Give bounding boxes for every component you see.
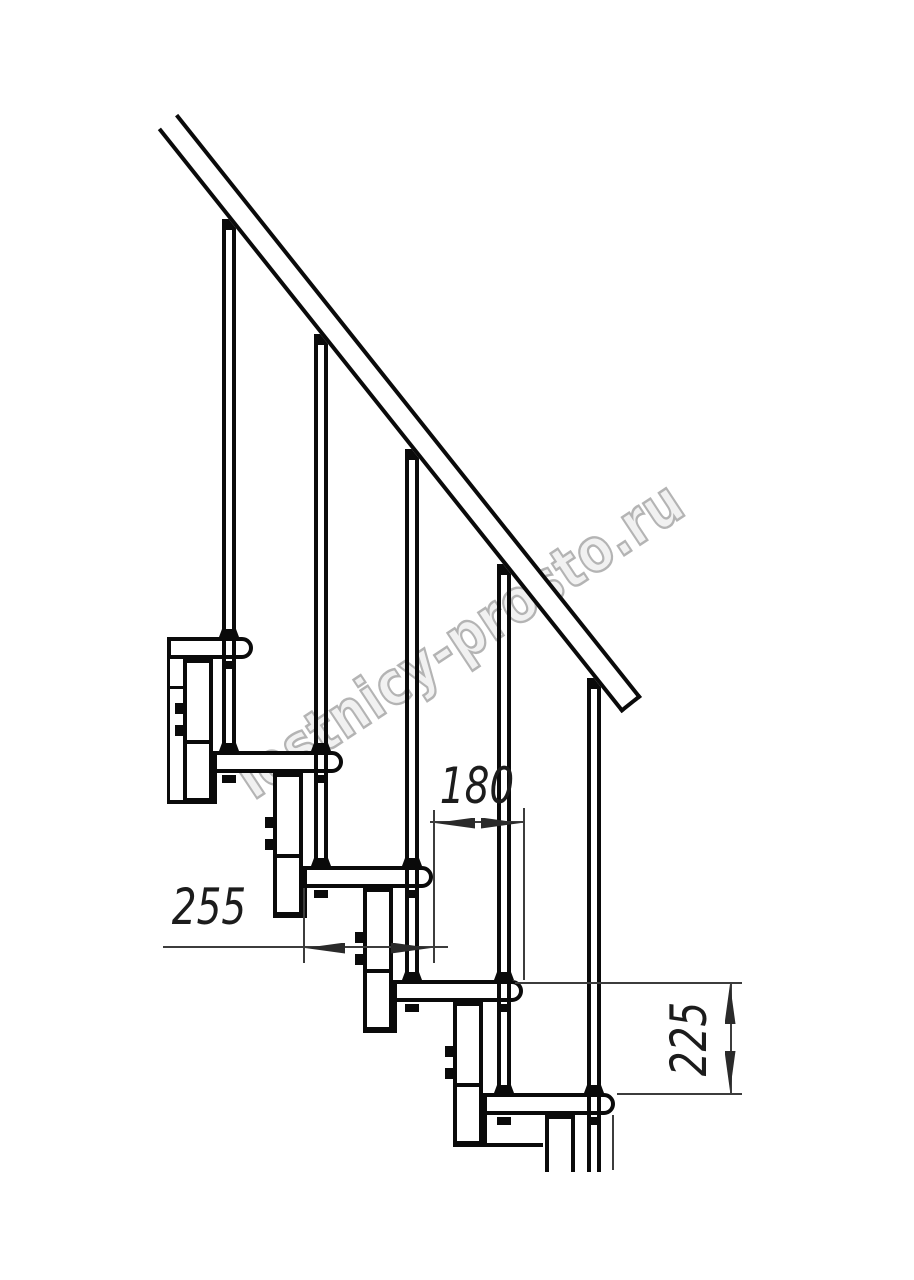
fastener-nut [405, 890, 419, 898]
fastener-nut [405, 1004, 419, 1012]
dimension-line [433, 810, 435, 963]
dimension-line [617, 1093, 742, 1095]
drawing-line [213, 773, 217, 804]
baluster-foot [494, 1085, 514, 1093]
baluster-foot [402, 972, 422, 980]
fastener-nut [587, 1117, 601, 1125]
fastener-nut [314, 890, 328, 898]
fastener-nut [222, 775, 236, 783]
drawing-line [453, 1083, 483, 1087]
module-bolt [445, 1046, 457, 1057]
dimension-arrow [725, 1051, 736, 1091]
drawing-line [363, 1029, 396, 1033]
drawing-line [363, 969, 393, 973]
dimension-arrow [725, 984, 736, 1024]
drawing-line [167, 800, 213, 804]
drawing-line [273, 854, 303, 858]
drawing-line [393, 1002, 397, 1033]
drawing-line [167, 686, 183, 689]
drawing-line [167, 659, 170, 804]
dimension-line [303, 888, 305, 963]
fastener-nut [497, 1004, 511, 1012]
drawing-line [483, 1115, 487, 1147]
module-bolt [355, 932, 367, 943]
module-bolt [175, 703, 187, 714]
drawing-line [273, 914, 306, 918]
baluster-foot [584, 1085, 604, 1093]
stair-module [545, 1115, 575, 1172]
dimension-arrow [305, 943, 345, 954]
dimension-line [523, 808, 525, 980]
dimension-arrow [435, 818, 475, 829]
stair-module [183, 659, 213, 802]
drawing-line [183, 740, 213, 744]
stair-module [453, 1002, 483, 1145]
baluster-foot [219, 629, 239, 637]
baluster-foot [311, 858, 331, 866]
baluster-foot [219, 743, 239, 751]
stair-module [363, 888, 393, 1031]
module-bolt [175, 725, 187, 736]
baluster-foot [311, 743, 331, 751]
dimension-line [515, 982, 742, 984]
module-bolt [265, 817, 277, 828]
baluster-rod [587, 689, 601, 1172]
fastener-nut [497, 1117, 511, 1125]
drawing-line [453, 1143, 543, 1147]
dimension-label-255: 255 [172, 882, 246, 932]
dimension-label-180: 180 [440, 761, 514, 811]
module-bolt [265, 839, 277, 850]
module-bolt [355, 954, 367, 965]
module-bolt [445, 1068, 457, 1079]
stair-tread [167, 637, 253, 659]
stair-module [273, 773, 303, 916]
baluster-foot [402, 858, 422, 866]
fastener-nut [314, 775, 328, 783]
drawing-canvas: lestnicy-prosto.ru 180 255 225 [0, 0, 914, 1280]
fastener-nut [222, 661, 236, 669]
dimension-line [612, 1115, 614, 1170]
baluster-foot [494, 972, 514, 980]
dimension-label-225: 225 [664, 1002, 714, 1076]
